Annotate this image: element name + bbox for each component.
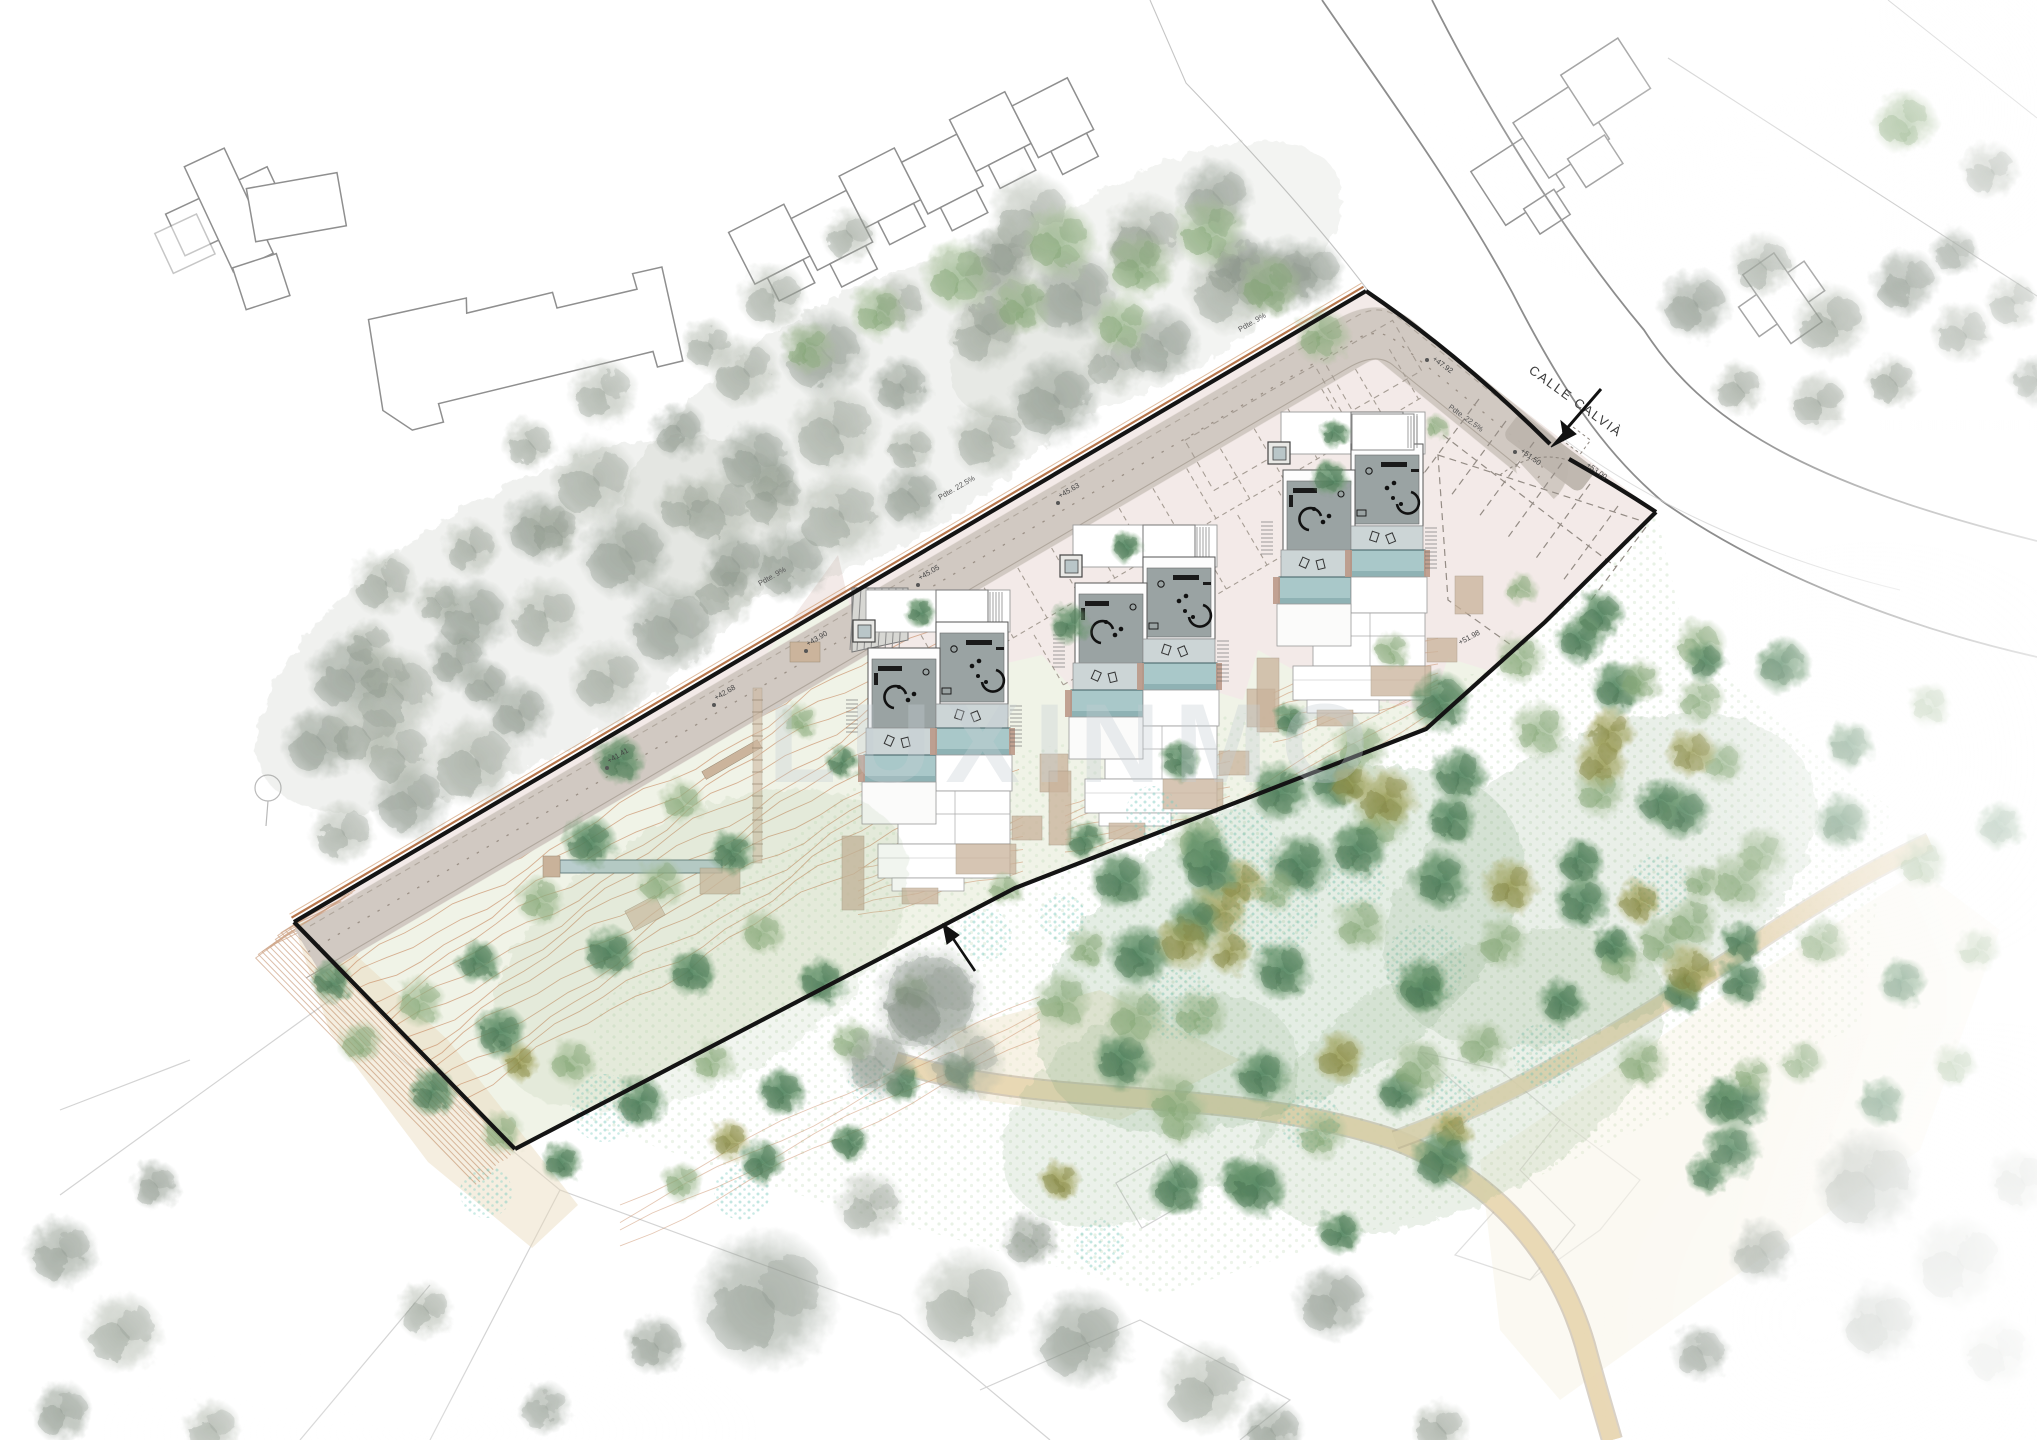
svg-text:LUXINMO: LUXINMO: [768, 681, 1382, 806]
